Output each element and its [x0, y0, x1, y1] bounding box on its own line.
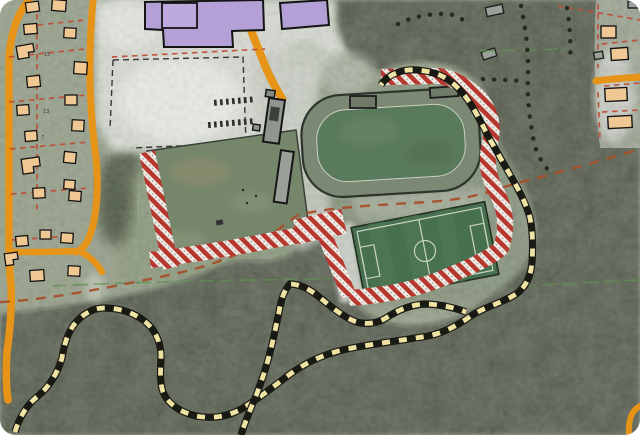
house	[25, 1, 39, 13]
plot-number: 7	[41, 135, 44, 141]
house	[611, 47, 629, 60]
school-courtyard	[162, 3, 197, 28]
purple-school-building-annex	[280, 0, 329, 29]
house	[25, 130, 38, 141]
house	[16, 235, 29, 246]
house	[601, 26, 616, 38]
house	[24, 23, 38, 34]
house	[64, 28, 77, 39]
bleacher	[350, 96, 376, 108]
house	[605, 87, 628, 101]
house	[69, 190, 82, 201]
clubhouse-unit	[265, 90, 275, 98]
road-cross-link	[12, 251, 78, 252]
house	[65, 95, 77, 105]
worn-grass-patch	[230, 192, 274, 212]
plot-number: 15	[44, 52, 50, 58]
road-east	[596, 77, 640, 81]
house	[61, 233, 74, 244]
house	[52, 0, 67, 12]
house	[608, 115, 633, 128]
house	[64, 180, 76, 190]
field-marker	[255, 195, 257, 197]
plot-number: 13	[43, 109, 49, 115]
house	[63, 151, 76, 163]
house	[68, 266, 81, 277]
house	[40, 230, 51, 239]
house	[27, 75, 41, 87]
house	[72, 120, 85, 132]
aerial-map: 15 13 7	[0, 0, 640, 435]
house	[74, 62, 88, 75]
athletics-track-group	[299, 86, 483, 199]
house	[30, 270, 45, 282]
worn-grass-patch	[170, 158, 230, 186]
field-marker	[242, 189, 244, 191]
clubhouse-unit	[253, 124, 261, 131]
house	[17, 105, 30, 116]
house	[33, 188, 46, 199]
shed	[628, 1, 639, 8]
shed	[594, 51, 604, 59]
field-marker	[246, 202, 248, 204]
